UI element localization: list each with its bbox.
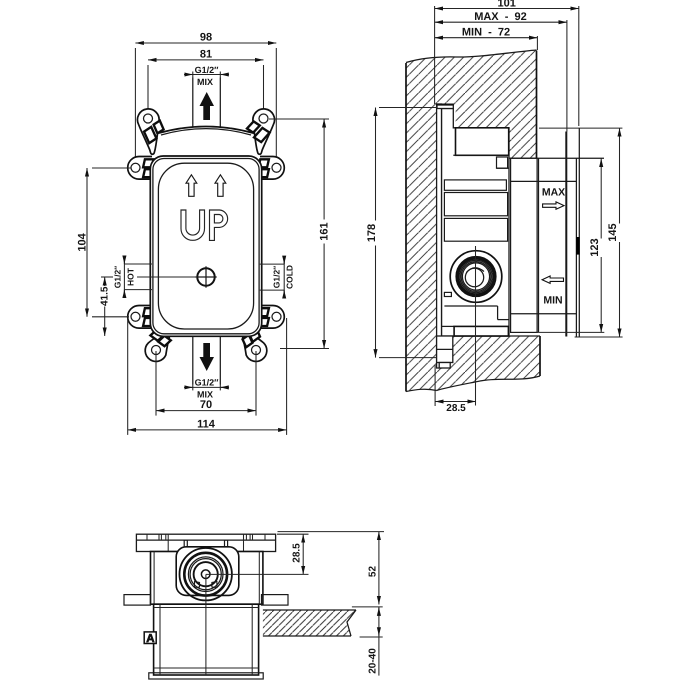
svg-text:G1/2″: G1/2″ — [195, 378, 220, 388]
svg-text:104: 104 — [77, 232, 89, 251]
svg-text:MIX: MIX — [197, 77, 213, 87]
svg-text:114: 114 — [197, 418, 216, 430]
svg-text:G1/2″: G1/2″ — [195, 65, 220, 75]
svg-text:52: 52 — [367, 566, 378, 578]
svg-text:41.5: 41.5 — [100, 286, 111, 306]
svg-text:A: A — [146, 633, 154, 645]
svg-text:28.5: 28.5 — [446, 403, 466, 414]
svg-text:70: 70 — [200, 399, 212, 411]
svg-text:101: 101 — [498, 0, 516, 10]
svg-text:123: 123 — [589, 238, 601, 256]
svg-text:MIX: MIX — [197, 390, 213, 400]
svg-text:81: 81 — [200, 49, 212, 61]
svg-text:MIN: MIN — [543, 294, 562, 306]
svg-text:G1/2″: G1/2″ — [113, 266, 123, 289]
svg-text:161: 161 — [319, 222, 331, 240]
svg-text:20-40: 20-40 — [367, 648, 378, 674]
svg-text:MAX: MAX — [542, 187, 565, 199]
svg-text:G1/2″: G1/2″ — [272, 266, 282, 289]
svg-text:MIN - 72: MIN - 72 — [462, 26, 510, 38]
svg-text:178: 178 — [366, 224, 378, 242]
svg-text:HOT: HOT — [125, 267, 135, 286]
svg-text:145: 145 — [607, 223, 619, 241]
svg-text:MAX - 92: MAX - 92 — [474, 11, 527, 23]
svg-text:28.5: 28.5 — [292, 543, 303, 563]
svg-text:98: 98 — [200, 32, 212, 44]
svg-text:COLD: COLD — [284, 265, 294, 289]
